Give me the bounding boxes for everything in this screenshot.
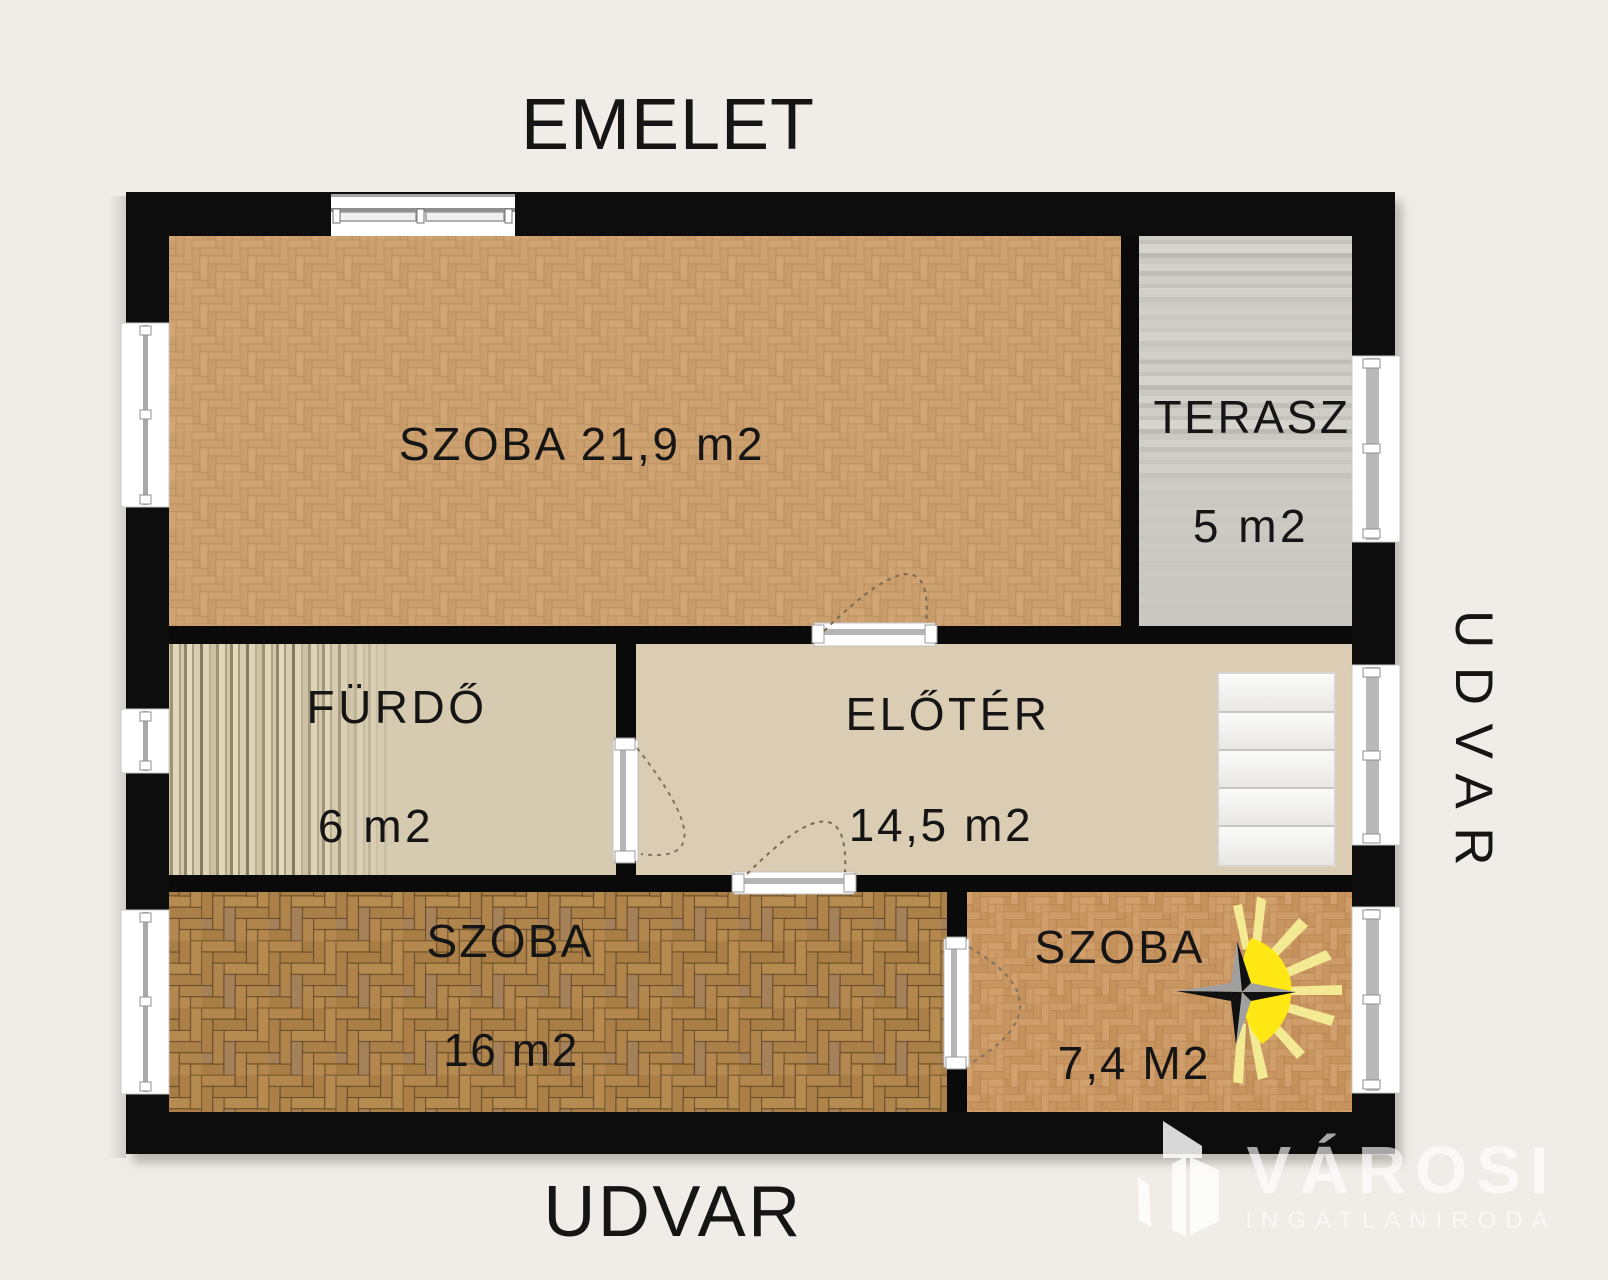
svg-text:6 m2: 6 m2: [318, 800, 434, 852]
svg-text:14,5 m2: 14,5 m2: [849, 799, 1033, 851]
svg-text:EMELET: EMELET: [521, 85, 815, 165]
svg-text:SZOBA: SZOBA: [427, 915, 594, 967]
svg-text:UDVAR: UDVAR: [543, 1172, 802, 1252]
svg-text:VÁROSI: VÁROSI: [1247, 1133, 1558, 1208]
svg-text:TERASZ: TERASZ: [1153, 391, 1350, 443]
svg-text:FÜRDŐ: FÜRDŐ: [306, 681, 487, 733]
svg-text:7,4 M2: 7,4 M2: [1058, 1037, 1211, 1089]
svg-text:UDVAR: UDVAR: [1444, 610, 1503, 884]
svg-text:ELŐTÉR: ELŐTÉR: [845, 688, 1050, 740]
svg-text:SZOBA: SZOBA: [1035, 921, 1206, 973]
svg-text:INGATLANIRODA: INGATLANIRODA: [1245, 1207, 1556, 1234]
svg-text:5 m2: 5 m2: [1193, 500, 1309, 552]
svg-text:16 m2: 16 m2: [443, 1024, 579, 1076]
svg-text:SZOBA 21,9 m2: SZOBA 21,9 m2: [399, 418, 765, 470]
